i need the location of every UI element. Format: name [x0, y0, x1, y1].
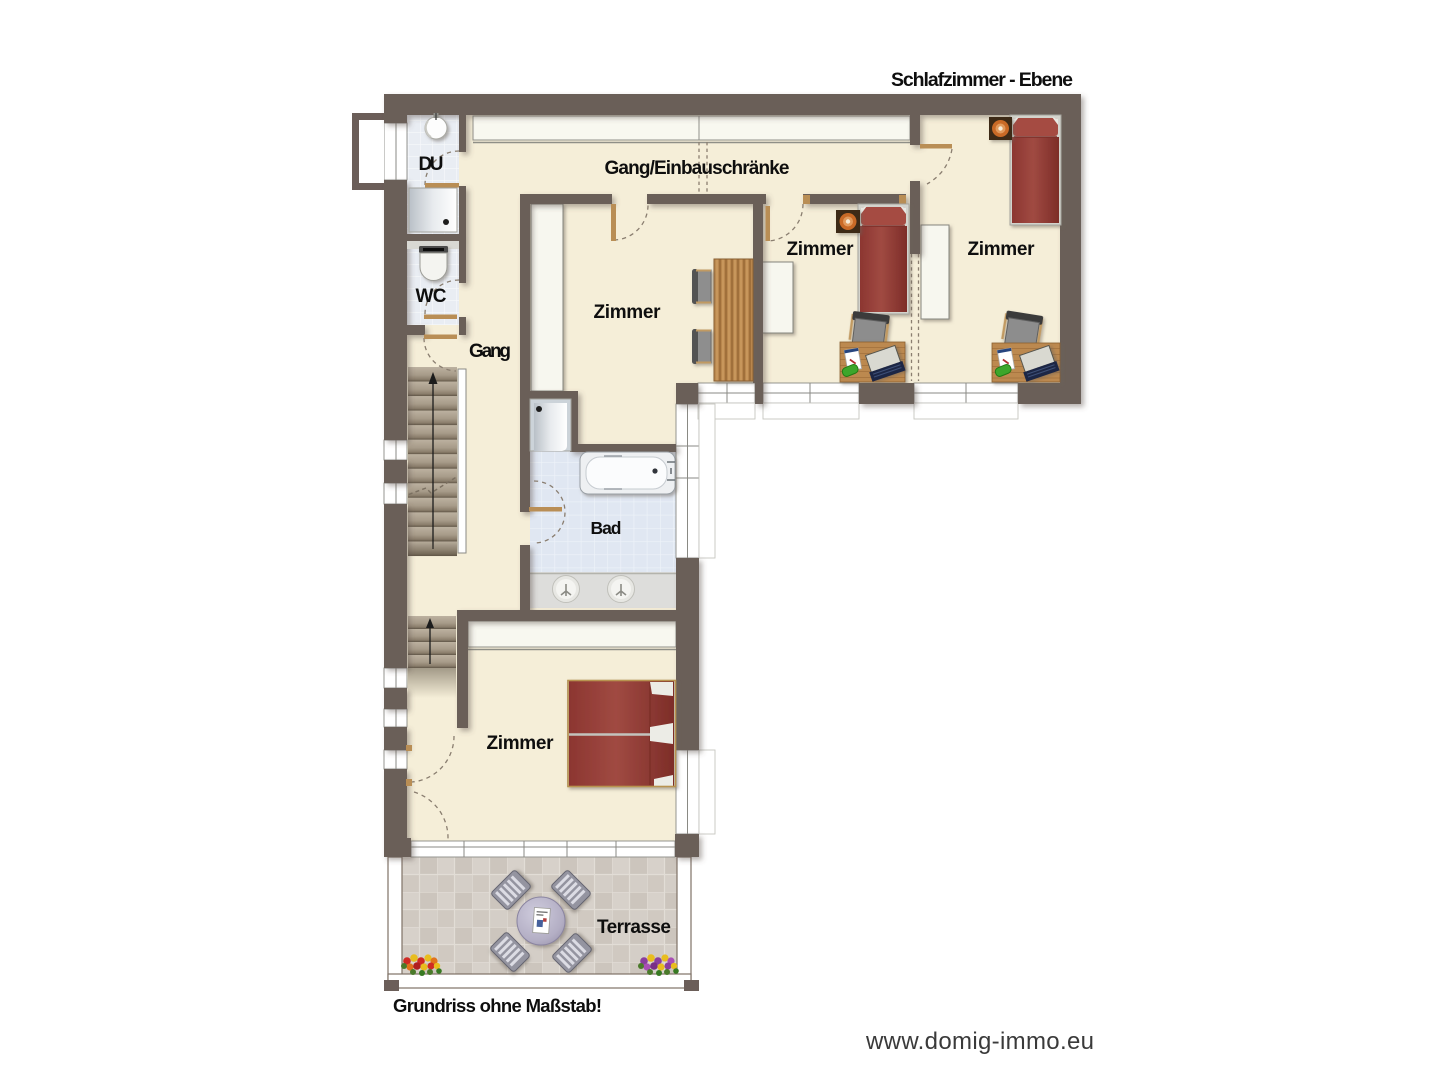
svg-text:Zimmer: Zimmer — [487, 733, 555, 754]
svg-text:DU: DU — [419, 154, 444, 175]
svg-text:Zimmer: Zimmer — [968, 239, 1036, 260]
svg-text:Terrasse: Terrasse — [597, 917, 671, 938]
svg-text:www.domig-immo.eu: www.domig-immo.eu — [865, 1028, 1094, 1055]
svg-text:Grundriss ohne Maßstab!: Grundriss ohne Maßstab! — [393, 995, 602, 1016]
svg-text:Bad: Bad — [591, 518, 622, 538]
svg-text:Schlafzimmer - Ebene: Schlafzimmer - Ebene — [891, 69, 1073, 91]
svg-text:Zimmer: Zimmer — [594, 302, 662, 323]
svg-text:WC: WC — [416, 286, 447, 307]
svg-text:Gang: Gang — [469, 341, 511, 362]
svg-text:Zimmer: Zimmer — [787, 239, 855, 260]
svg-text:Gang/Einbauschränke: Gang/Einbauschränke — [605, 158, 790, 179]
